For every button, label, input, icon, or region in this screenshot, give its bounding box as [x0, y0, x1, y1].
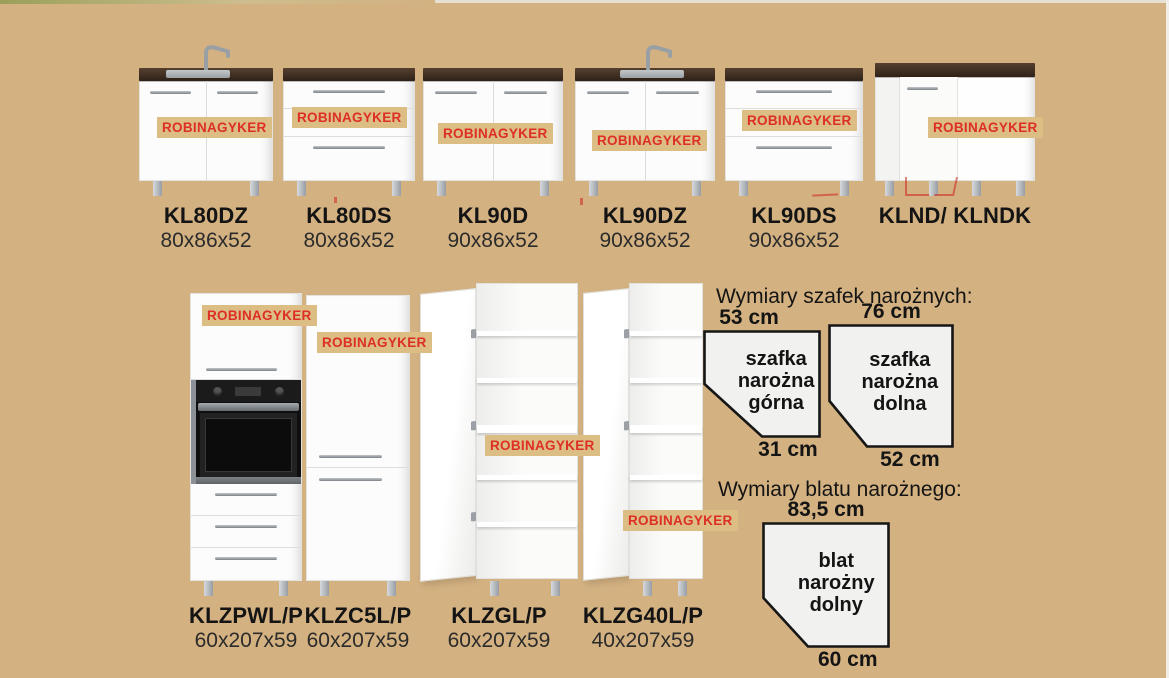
watermark: ROBINAGYKER — [317, 332, 432, 353]
product-name: KL80DZ — [138, 203, 274, 229]
oven-display — [235, 387, 261, 396]
oven-knob-icon — [213, 387, 222, 396]
drawer-handle — [756, 90, 832, 93]
drawer — [191, 516, 301, 548]
dimension-bottom: 60 cm — [762, 648, 890, 672]
product-dimensions: 80x86x52 — [281, 229, 417, 252]
watermark: ROBINAGYKER — [623, 510, 738, 531]
watermark: ROBINAGYKER — [928, 117, 1043, 138]
oven-door-glass — [200, 413, 297, 477]
countertop — [875, 63, 1035, 77]
oven-control-panel — [196, 380, 301, 402]
drawer — [284, 81, 414, 109]
product-name: KLZPWL/P — [186, 603, 306, 629]
product-dimensions: 60x207x59 — [186, 629, 306, 652]
watermark: ROBINAGYKER — [438, 123, 553, 144]
watermark: ROBINAGYKER — [592, 130, 707, 151]
shape-label: blat narożny dolny — [785, 550, 887, 616]
cabinet-legs — [423, 181, 563, 196]
drawer — [191, 484, 301, 516]
drawer-handle — [313, 90, 386, 93]
faucet-icon — [197, 44, 241, 70]
crop-artifact — [0, 0, 435, 4]
product-name: KLZG40L/P — [581, 603, 705, 629]
product-dimensions: 90x86x52 — [723, 229, 865, 252]
cabinet-illustration-drawers — [725, 68, 863, 196]
shelf — [477, 331, 577, 336]
product-card-kl90d: ROBINAGYKER KL90D 90x86x52 — [421, 32, 565, 252]
cabinet-illustration-tall-oven — [190, 293, 302, 596]
product-dimensions: 40x207x59 — [581, 629, 705, 652]
erased-price-mark — [580, 198, 583, 205]
door-handle — [319, 455, 382, 458]
cabinet-legs — [139, 181, 273, 196]
watermark: ROBINAGYKER — [742, 110, 857, 131]
product-card-klnd: ROBINAGYKER KLND/ KLNDK — [873, 32, 1037, 229]
drawer — [726, 81, 862, 109]
product-dimensions: 60x207x59 — [418, 629, 580, 652]
countertop — [725, 68, 863, 81]
product-card-klzg40l: ROBINAGYKER KLZG40L/P 40x207x59 — [581, 283, 705, 652]
shelf — [477, 425, 577, 433]
cabinet-illustration-drawers — [283, 68, 415, 196]
product-dimensions: 80x86x52 — [138, 229, 274, 252]
door-handle — [435, 91, 477, 94]
drawer-handle — [215, 525, 277, 528]
cabinet-legs — [629, 581, 701, 596]
dimension-bottom: 31 cm — [703, 438, 821, 462]
shape-label: szafka narożna dolna — [848, 349, 951, 415]
drawer — [726, 137, 862, 179]
product-card-klzc5l: ROBINAGYKER KLZC5L/P 60x207x59 — [303, 283, 413, 652]
oven-knob-icon — [275, 387, 284, 396]
shelf — [630, 425, 702, 433]
sink-basin — [620, 70, 684, 78]
cabinet-door — [307, 468, 409, 580]
shelf — [630, 378, 702, 383]
product-card-kl90ds: ROBINAGYKER KL90DS 90x86x52 — [723, 32, 865, 252]
door-handle — [206, 368, 276, 371]
oven-trim — [196, 477, 301, 484]
door-handle — [319, 478, 382, 481]
drawer — [191, 548, 301, 580]
product-card-kl80ds: ROBINAGYKER KL80DS 80x86x52 — [281, 32, 417, 252]
erased-price-mark — [934, 177, 958, 196]
product-name: KLZC5L/P — [303, 603, 413, 629]
shelf — [477, 475, 577, 480]
door-handle — [150, 91, 191, 94]
door-handle — [587, 91, 629, 94]
shelf — [630, 331, 702, 336]
watermark: ROBINAGYKER — [202, 305, 317, 326]
cabinet-legs — [190, 581, 302, 596]
dimension-top: 53 cm — [703, 306, 821, 330]
dimension-bottom: 52 cm — [828, 448, 954, 472]
product-card-kl90dz: ROBINAGYKER KL90DZ 90x86x52 — [573, 32, 717, 252]
product-dimensions: 90x86x52 — [421, 229, 565, 252]
cabinet-legs — [575, 181, 715, 196]
drawer-handle — [215, 493, 277, 496]
drawer-handle — [215, 557, 277, 560]
corner-cabinet-upper-diagram: 53 cm szafka narożna górna 31 cm — [703, 306, 821, 462]
oven-handle — [198, 403, 299, 411]
product-dimensions: 90x86x52 — [573, 229, 717, 252]
side-panel — [876, 77, 900, 180]
watermark: ROBINAGYKER — [157, 117, 272, 138]
drawer — [284, 137, 414, 179]
product-name: KL90DS — [723, 203, 865, 229]
door-handle — [504, 91, 546, 94]
shelf — [477, 378, 577, 383]
watermark: ROBINAGYKER — [292, 107, 407, 128]
shelf — [630, 475, 702, 480]
erased-price-mark — [905, 177, 929, 196]
faucet-icon — [639, 44, 683, 70]
watermark: ROBINAGYKER — [485, 435, 600, 456]
corner-cabinet-lower-diagram: 76 cm szafka narożna dolna 52 cm — [828, 300, 954, 472]
product-dimensions: 60x207x59 — [303, 629, 413, 652]
shape-label: szafka narożna górna — [731, 348, 821, 414]
shelf-interior — [476, 283, 578, 579]
drawer-handle — [756, 146, 832, 149]
product-name: KL90DZ — [573, 203, 717, 229]
countertop — [423, 68, 563, 81]
cabinet-door — [307, 296, 409, 468]
erased-price-mark — [334, 197, 337, 203]
sink-basin — [166, 70, 230, 78]
shelf-interior — [629, 283, 703, 579]
product-card-kl80dz: ROBINAGYKER KL80DZ 80x86x52 — [138, 32, 274, 252]
cabinet-illustration-tall-shelves-narrow — [583, 283, 703, 596]
crop-artifact — [435, 0, 1169, 3]
erased-price-mark — [812, 186, 838, 196]
corner-worktop-diagram: 83,5 cm blat narożny dolny 60 cm — [762, 498, 890, 672]
product-name: KLZGL/P — [418, 603, 580, 629]
product-name: KL80DS — [281, 203, 417, 229]
product-name: KLND/ KLNDK — [873, 203, 1037, 229]
product-name: KL90D — [421, 203, 565, 229]
door-handle — [656, 91, 698, 94]
cabinet-legs — [725, 181, 863, 196]
cabinet-legs — [476, 581, 574, 596]
catalog-page: ROBINAGYKER KL80DZ 80x86x52 ROBINAGYKER … — [0, 0, 1169, 678]
cabinet-legs — [283, 181, 415, 196]
dimension-top: 83,5 cm — [762, 498, 890, 522]
product-card-klzgl: ROBINAGYKER KLZGL/P 60x207x59 — [418, 283, 580, 652]
drawer-handle — [313, 146, 386, 149]
door-handle — [217, 91, 258, 94]
countertop — [283, 68, 415, 81]
dimension-top: 76 cm — [828, 300, 954, 324]
shelf — [477, 522, 577, 527]
product-card-klzpwl: ROBINAGYKER KLZPWL/P 60x207x59 — [186, 283, 306, 652]
cabinet-legs — [306, 581, 410, 596]
door-handle — [907, 87, 939, 90]
built-in-oven — [191, 380, 301, 484]
